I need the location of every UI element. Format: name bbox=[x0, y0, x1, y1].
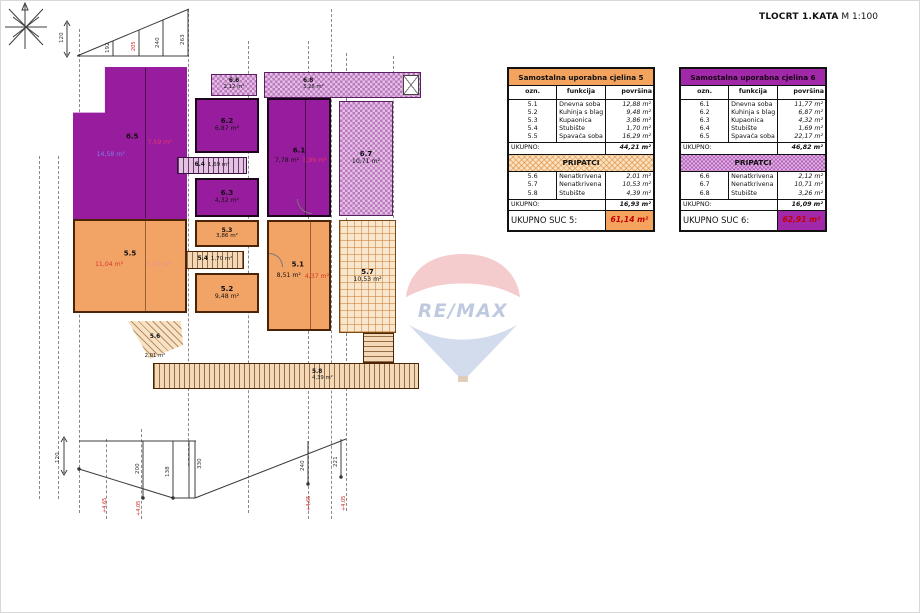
dim-label: 263 bbox=[180, 34, 186, 45]
room-divider bbox=[145, 220, 146, 312]
sheet-title-bold: TLOCRT 1.KATA bbox=[759, 12, 839, 22]
room-area: 14,58 m² bbox=[97, 152, 125, 158]
remax-wordmark: RE/MAX bbox=[418, 301, 508, 322]
room-label: 5.5 bbox=[124, 251, 136, 258]
room-5-1-living: 5.1 8,51 m² 4,37 m² bbox=[267, 220, 331, 331]
dimension-figure-bottom: 120 200 138 330 240 221 +4,65 +4,05 +4,6… bbox=[49, 429, 361, 517]
room-area: 8,51 m² bbox=[277, 272, 301, 278]
room-label: 6.2 bbox=[221, 118, 233, 125]
room-area: 1,69 m² bbox=[208, 163, 230, 169]
sheet-title: TLOCRT 1.KATA M 1:100 bbox=[759, 12, 878, 22]
room-5-5-bedroom: 5.5 11,04 m² 5,25 m² bbox=[73, 219, 187, 313]
subtotal-row: UKUPNO:46,82 m² bbox=[680, 143, 826, 154]
table-cell: 2,12 m²10,71 m²3,26 m² bbox=[777, 172, 826, 200]
table-row-block: 5.65.75.8Nenatkrivena terasaNenatkrivena… bbox=[508, 172, 654, 200]
table-line: 22,17 m² bbox=[780, 133, 823, 141]
table-line: Kupaonica bbox=[559, 117, 603, 125]
terrace-6-6: 6.6 2,12 m² bbox=[211, 74, 257, 96]
table-cell: Dnevna sobaKuhinja s blagovaonicomKupaon… bbox=[729, 99, 778, 143]
dimension-figure-top: 120 192 205 240 263 bbox=[37, 3, 203, 65]
subtotal-value: 46,82 m² bbox=[777, 143, 826, 154]
table-line: 10,71 m² bbox=[780, 181, 823, 189]
room-label: 6.1 bbox=[293, 147, 305, 154]
table-line: 11,77 m² bbox=[780, 101, 823, 109]
room-label: 5.4 bbox=[198, 257, 208, 263]
dim-label: 221 bbox=[333, 456, 339, 467]
level-marker: +4,65 bbox=[102, 498, 108, 513]
table-line: Nenatkrivena terasa bbox=[731, 181, 775, 189]
stairs-strip-5-8: 5.8 4,39 m² bbox=[153, 363, 419, 389]
dim-label: 240 bbox=[155, 37, 161, 48]
room-label: 6.4 bbox=[195, 163, 205, 169]
total-row: UKUPNO SUC 5:61,14 m² bbox=[508, 210, 654, 230]
room-label: 6.5 bbox=[126, 133, 138, 140]
subtotal-label: UKUPNO: bbox=[680, 143, 777, 154]
level-marker: +4,65 bbox=[306, 496, 312, 511]
room-area: 4,37 m² bbox=[305, 273, 329, 279]
table-title: Samostalna uporabna cjelina 6 bbox=[680, 68, 826, 86]
grid-line bbox=[188, 9, 189, 466]
table-line: 6.4 bbox=[683, 125, 726, 133]
subtotal-row: UKUPNO:16,93 m² bbox=[508, 199, 654, 210]
unit-table: Samostalna uporabna cjelina 5ozn.funkcij… bbox=[507, 67, 655, 232]
table-header-row: ozn.funkcijapovršina bbox=[508, 86, 654, 99]
table-line: 12,88 m² bbox=[608, 101, 651, 109]
subtotal-value: 16,09 m² bbox=[777, 199, 826, 210]
room-area: 3,86 m² bbox=[216, 234, 238, 240]
level-marker: +4,05 bbox=[341, 496, 347, 511]
room-5-4-stairs: 5.4 1,70 m² bbox=[186, 251, 244, 269]
room-area: 10,53 m² bbox=[353, 277, 381, 283]
room-divider bbox=[145, 68, 146, 218]
table-title: Samostalna uporabna cjelina 5 bbox=[508, 68, 654, 86]
table-line: 5.7 bbox=[511, 181, 554, 189]
dim-label: 120 bbox=[59, 32, 65, 43]
room-6-2-kitchen: 6.2 6,87 m² bbox=[195, 98, 259, 153]
table-line: 5.4 bbox=[511, 125, 554, 133]
table-line: Stubište bbox=[731, 190, 775, 198]
table-line: Nenatkrivena terasa bbox=[731, 173, 775, 181]
table-line: 2,12 m² bbox=[780, 173, 823, 181]
table-line: 4,39 m² bbox=[608, 190, 651, 198]
table-cell: Dnevna sobaKuhinja s blagovaonicomKupaon… bbox=[557, 99, 606, 143]
terrace-6-7: 6.7 10,71 m² bbox=[339, 101, 393, 216]
grid-line bbox=[39, 156, 40, 499]
table-cell: 12,88 m²9,48 m²3,86 m²1,70 m²16,29 m² bbox=[605, 99, 654, 143]
table-cell: Samostalna uporabna cjelina 6 bbox=[680, 68, 826, 86]
table-line: Dnevna soba bbox=[731, 101, 775, 109]
stairs-5-8-vertical bbox=[363, 333, 394, 363]
table-line: 6.7 bbox=[683, 181, 726, 189]
floorplan-sheet: TLOCRT 1.KATA M 1:100 6.5 14,58 m² 7,59 … bbox=[0, 0, 920, 613]
dim-label: 200 bbox=[135, 463, 141, 474]
room-area: 4,39 m² bbox=[312, 376, 333, 381]
dim-label: 240 bbox=[300, 460, 306, 471]
table-line: 1,69 m² bbox=[780, 125, 823, 133]
total-row: UKUPNO SUC 6:62,91 m² bbox=[680, 210, 826, 230]
table-line: Nenatkrivena terasa bbox=[559, 173, 603, 181]
column-header: površina bbox=[777, 86, 826, 99]
table-line: 6.5 bbox=[683, 133, 726, 141]
table-row-block: 5.15.25.35.45.5Dnevna sobaKuhinja s blag… bbox=[508, 99, 654, 143]
column-header: ozn. bbox=[680, 86, 729, 99]
room-label: 6.7 bbox=[360, 151, 372, 158]
subtotal-row: UKUPNO:44,21 m² bbox=[508, 143, 654, 154]
table-cell: 5.15.25.35.45.5 bbox=[508, 99, 557, 143]
unit-table: Samostalna uporabna cjelina 6ozn.funkcij… bbox=[679, 67, 827, 232]
table-line: 9,48 m² bbox=[608, 109, 651, 117]
table-line: Kuhinja s blagovaonicom bbox=[559, 109, 603, 117]
table-line: 6.3 bbox=[683, 117, 726, 125]
column-header: funkcija bbox=[729, 86, 778, 99]
table-cell: Nenatkrivena terasaNenatkrivena terasaSt… bbox=[557, 172, 606, 200]
unit6-table: Samostalna uporabna cjelina 6ozn.funkcij… bbox=[679, 67, 827, 232]
room-area: 2,01 m² bbox=[145, 353, 166, 359]
section-header: PRIPATCI bbox=[508, 154, 654, 172]
table-cell: 6.66.76.8 bbox=[680, 172, 729, 200]
table-line: 16,29 m² bbox=[608, 133, 651, 141]
room-label: 5.6 bbox=[150, 334, 160, 340]
subtotal-label: UKUPNO: bbox=[508, 143, 605, 154]
level-marker: +4,05 bbox=[136, 501, 142, 516]
room-label: 5.7 bbox=[361, 269, 373, 276]
subtotal-row: UKUPNO:16,09 m² bbox=[680, 199, 826, 210]
stairs-strip-6-8: 6.8 3,26 m² bbox=[264, 72, 421, 98]
room-area: 7,59 m² bbox=[147, 140, 171, 146]
room-5-3-bathroom: 5.3 3,86 m² bbox=[195, 220, 259, 247]
subtotal-label: UKUPNO: bbox=[680, 199, 777, 210]
room-divider bbox=[310, 221, 311, 330]
table-line: Dnevna soba bbox=[559, 101, 603, 109]
table-cell: PRIPATCI bbox=[508, 154, 654, 172]
table-line: Kupaonica bbox=[731, 117, 775, 125]
table-cell: 11,77 m²6,87 m²4,32 m²1,69 m²22,17 m² bbox=[777, 99, 826, 143]
table-line: 6,87 m² bbox=[780, 109, 823, 117]
table-line: 6.6 bbox=[683, 173, 726, 181]
table-line: 5.3 bbox=[511, 117, 554, 125]
table-line: 2,01 m² bbox=[608, 173, 651, 181]
table-cell: Samostalna uporabna cjelina 5 bbox=[508, 68, 654, 86]
column-header: funkcija bbox=[557, 86, 606, 99]
room-area: 7,78 m² bbox=[275, 158, 299, 164]
table-line: 5.6 bbox=[511, 173, 554, 181]
column-marker bbox=[403, 75, 419, 95]
table-line: 10,53 m² bbox=[608, 181, 651, 189]
unit5-table: Samostalna uporabna cjelina 5ozn.funkcij… bbox=[507, 67, 655, 232]
table-cell: 2,01 m²10,53 m²4,39 m² bbox=[605, 172, 654, 200]
room-area: 9,48 m² bbox=[215, 294, 239, 300]
room-area: 3,26 m² bbox=[303, 85, 324, 90]
room-6-4-stairs: 6.4 1,69 m² bbox=[177, 157, 247, 174]
dim-label: 330 bbox=[197, 458, 203, 469]
column-header: površina bbox=[605, 86, 654, 99]
total-value: 62,91 m² bbox=[777, 210, 826, 230]
subtotal-value: 44,21 m² bbox=[605, 143, 654, 154]
room-area: 5,25 m² bbox=[146, 262, 170, 268]
table-cell: 5.65.75.8 bbox=[508, 172, 557, 200]
room-5-2-kitchen: 5.2 9,48 m² bbox=[195, 273, 259, 313]
total-value: 61,14 m² bbox=[605, 210, 654, 230]
sheet-title-scale: M 1:100 bbox=[841, 12, 878, 22]
room-area: 11,04 m² bbox=[95, 262, 123, 268]
dim-label: 192 bbox=[105, 42, 111, 53]
table-line: 4,32 m² bbox=[780, 117, 823, 125]
table-line: 1,70 m² bbox=[608, 125, 651, 133]
room-label: 6.3 bbox=[221, 190, 233, 197]
table-cell: PRIPATCI bbox=[680, 154, 826, 172]
table-line: Stubište bbox=[559, 125, 603, 133]
total-label: UKUPNO SUC 5: bbox=[508, 210, 605, 230]
table-line: 3,86 m² bbox=[608, 117, 651, 125]
terrace-5-7: 5.7 10,53 m² bbox=[339, 220, 396, 333]
table-line: Spavaća soba bbox=[559, 133, 603, 141]
room-area: 2,12 m² bbox=[224, 85, 245, 90]
table-row-block: 6.66.76.8Nenatkrivena terasaNenatkrivena… bbox=[680, 172, 826, 200]
column-header: ozn. bbox=[508, 86, 557, 99]
dim-label: 120 bbox=[55, 452, 61, 463]
table-cell: 6.16.26.36.46.5 bbox=[680, 99, 729, 143]
section-header: PRIPATCI bbox=[680, 154, 826, 172]
room-area: 6,87 m² bbox=[215, 126, 239, 132]
table-line: 5.5 bbox=[511, 133, 554, 141]
room-area: 3,99 m² bbox=[302, 158, 326, 164]
table-line: 6.2 bbox=[683, 109, 726, 117]
table-line: Stubište bbox=[559, 190, 603, 198]
table-line: Kuhinja s blagovaonicom bbox=[731, 109, 775, 117]
room-area: 4,32 m² bbox=[215, 198, 239, 204]
table-line: 6.1 bbox=[683, 101, 726, 109]
table-line: 5.1 bbox=[511, 101, 554, 109]
table-line: Spavaća soba bbox=[731, 133, 775, 141]
table-line: Stubište bbox=[731, 125, 775, 133]
table-row-block: 6.16.26.36.46.5Dnevna sobaKuhinja s blag… bbox=[680, 99, 826, 143]
table-line: Nenatkrivena terasa bbox=[559, 181, 603, 189]
table-line: 5.8 bbox=[511, 190, 554, 198]
room-6-5-bedroom: 6.5 14,58 m² 7,59 m² bbox=[73, 67, 187, 219]
table-line: 6.8 bbox=[683, 190, 726, 198]
table-header-row: ozn.funkcijapovršina bbox=[680, 86, 826, 99]
room-6-3-bathroom: 6.3 4,32 m² bbox=[195, 178, 259, 217]
room-label: 5.2 bbox=[221, 286, 233, 293]
table-line: 5.2 bbox=[511, 109, 554, 117]
table-cell: Nenatkrivena terasaNenatkrivena terasaSt… bbox=[729, 172, 778, 200]
room-label: 5.1 bbox=[292, 261, 304, 268]
dim-label: 138 bbox=[165, 466, 171, 477]
room-area: 1,70 m² bbox=[211, 257, 233, 263]
terrace-5-6-labels: 5.6 2,01 m² bbox=[129, 323, 181, 361]
table-line: 3,26 m² bbox=[780, 190, 823, 198]
total-label: UKUPNO SUC 6: bbox=[680, 210, 777, 230]
room-area: 10,71 m² bbox=[352, 159, 380, 165]
dim-label: 205 bbox=[131, 41, 137, 51]
subtotal-value: 16,93 m² bbox=[605, 199, 654, 210]
subtotal-label: UKUPNO: bbox=[508, 199, 605, 210]
remax-balloon-watermark: RE/MAX bbox=[399, 245, 527, 385]
